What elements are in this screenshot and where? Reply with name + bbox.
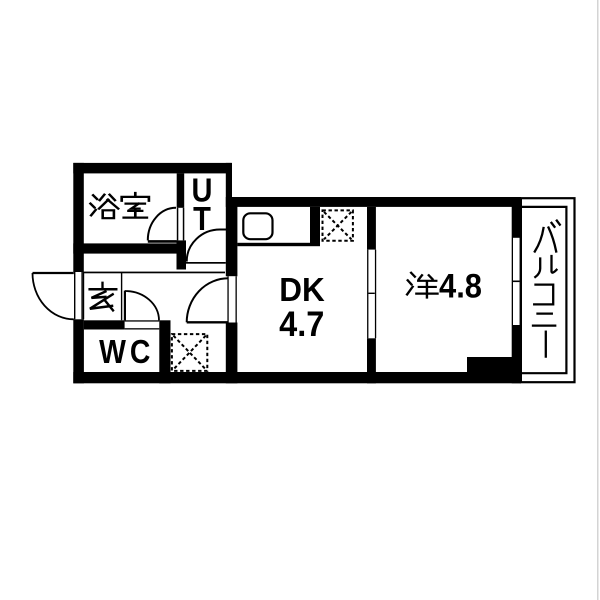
svg-text:WC: WC <box>99 333 154 371</box>
svg-text:4.8: 4.8 <box>439 267 482 305</box>
svg-text:4.7: 4.7 <box>279 305 324 344</box>
svg-text:T: T <box>193 200 211 237</box>
svg-text:DK: DK <box>279 272 325 309</box>
